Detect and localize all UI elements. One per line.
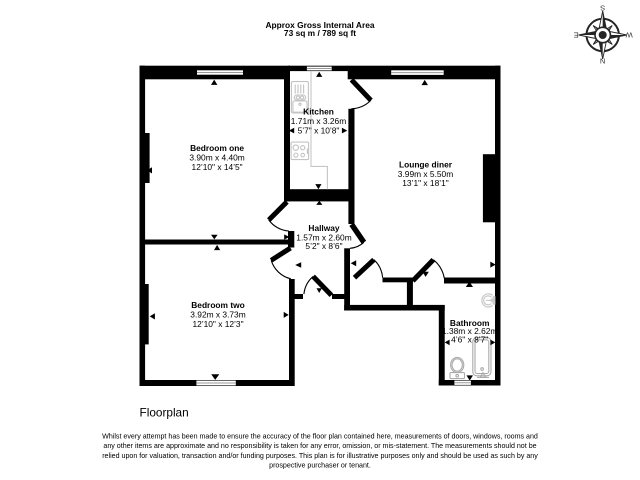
svg-text:any other items are approximat: any other items are approximate and no r… — [103, 442, 536, 450]
svg-text:Whilst every attempt has been: Whilst every attempt has been made to en… — [102, 432, 538, 440]
svg-text:Lounge diner: Lounge diner — [399, 160, 453, 170]
svg-text:E: E — [574, 30, 579, 39]
svg-text:73 sq m / 789 sq ft: 73 sq m / 789 sq ft — [284, 28, 356, 38]
svg-text:4’6" x 8’7": 4’6" x 8’7" — [451, 334, 488, 344]
svg-text:12’10" x 14’5": 12’10" x 14’5" — [192, 162, 243, 172]
svg-text:5’7" x 10’8": 5’7" x 10’8" — [298, 125, 340, 135]
svg-text:prospective purchaser or tenan: prospective purchaser or tenant. — [269, 462, 371, 470]
svg-text:12’10" x 12’3": 12’10" x 12’3" — [192, 319, 243, 329]
svg-text:3.90m x 4.40m: 3.90m x 4.40m — [189, 152, 244, 162]
svg-text:Floorplan: Floorplan — [140, 405, 189, 419]
svg-text:Kitchen: Kitchen — [303, 107, 334, 117]
svg-text:5’2" x 8’6": 5’2" x 8’6" — [305, 241, 342, 251]
svg-text:relied upon for valuation, tra: relied upon for valuation, transaction a… — [102, 452, 538, 460]
svg-text:3.92m x 3.73m: 3.92m x 3.73m — [190, 309, 245, 319]
svg-text:S: S — [600, 4, 605, 13]
svg-text:13’1" x 18’1": 13’1" x 18’1" — [402, 178, 448, 188]
svg-text:W: W — [625, 30, 633, 39]
svg-text:N: N — [600, 57, 605, 66]
